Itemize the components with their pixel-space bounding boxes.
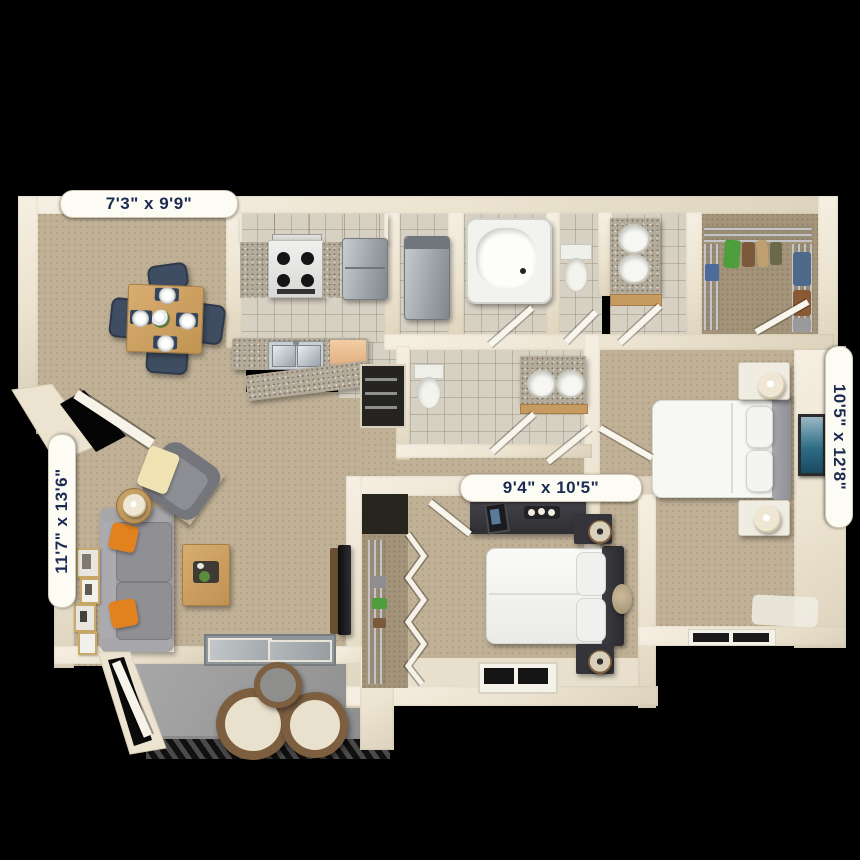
art-canvas [801, 417, 823, 473]
living-dimension-label: 11'7" x 13'6" [48, 434, 76, 608]
dinner-plate [179, 312, 197, 330]
bedroom2-dimension-text: 9'4" x 10'5" [503, 478, 599, 498]
linen-shelf [365, 378, 397, 381]
closet-clothes-green [372, 598, 387, 609]
wall-vanity-closet [686, 212, 702, 342]
hanging-clothes-brown [742, 242, 755, 267]
stove-burner [277, 274, 290, 287]
master-wall-art [798, 414, 826, 476]
sliding-door-pane [208, 638, 272, 662]
master-pillow [746, 406, 773, 448]
table-lamp [123, 494, 146, 517]
bedroom2-pillow [576, 598, 606, 642]
candle [548, 509, 555, 516]
art-content [82, 554, 91, 569]
wall-masterbath-bottom [396, 444, 592, 458]
kitchen-sink [268, 341, 324, 370]
bedroom2-window-pane [484, 668, 514, 684]
stove-control-panel [277, 289, 315, 294]
nightstand-lamp [754, 506, 781, 533]
dinner-plate [159, 287, 177, 305]
closet-clothes-gray [372, 576, 386, 588]
dining-table [126, 284, 204, 355]
washer-top-panel [405, 237, 449, 249]
wall-row1-bottom [384, 334, 834, 350]
bedroom2-pillow [576, 552, 606, 596]
wall-bedroom2-right [638, 494, 656, 708]
stove [268, 240, 324, 298]
throw-pillow-orange [108, 598, 139, 629]
coffee-table [182, 544, 230, 606]
bedroom2-lamp [588, 650, 612, 674]
bedroom2-closet-upper [362, 494, 408, 534]
linen-closet [360, 364, 406, 428]
wall-left-dining [18, 196, 38, 394]
dining-dimension-label: 7'3" x 9'9" [60, 190, 238, 218]
toilet-bowl [564, 258, 588, 292]
stove-burner [301, 274, 314, 287]
master-window [688, 629, 776, 646]
floor-blanket [751, 594, 818, 627]
sink-faucet [293, 340, 299, 346]
flower-centerpiece [152, 310, 171, 329]
wall-art-frame [76, 548, 100, 578]
master-pillow [746, 450, 773, 492]
hanging-clothes-olive [770, 242, 782, 265]
wall-art-frame [74, 604, 96, 632]
master-headboard [772, 394, 791, 500]
refrigerator [342, 238, 388, 300]
living-dimension-text: 11'7" x 13'6" [52, 468, 72, 573]
closet-bin-blue [705, 264, 719, 281]
vanity-sink [618, 224, 650, 254]
floor-plan-scene: 7'3" x 9'9" 9'4" x 10'5" 11'7" x 13'6" 1… [0, 0, 860, 860]
dinner-plate [132, 310, 150, 328]
closet-clothes-brown [373, 618, 386, 628]
sink-basin [297, 345, 321, 367]
bathtub-basin [476, 228, 536, 288]
tv [338, 545, 351, 635]
bedroom2-window [478, 662, 558, 694]
hanging-clothes-denim [793, 252, 811, 286]
candle [528, 509, 535, 516]
pouf [612, 584, 632, 614]
stove-burner [277, 252, 290, 265]
throw-pillow-orange [107, 521, 139, 553]
hanging-clothes-tan [756, 240, 769, 268]
art-content [85, 584, 92, 595]
candle [538, 508, 545, 515]
bedroom2-dimension-label: 9'4" x 10'5" [460, 474, 642, 502]
wall-art-frame [78, 632, 97, 655]
master-vanity-sink [527, 370, 556, 398]
linen-shelf [365, 392, 397, 395]
washer-dryer [404, 236, 450, 320]
bedroom2-lamp [588, 520, 612, 544]
tablet-screen [490, 509, 501, 525]
nightstand-lamp [758, 372, 785, 399]
duvet-fold [731, 403, 733, 493]
master-vanity-cabinet [520, 404, 588, 414]
master-toilet-bowl [417, 377, 441, 409]
sofa [100, 508, 174, 652]
master-vanity-sink [556, 370, 585, 398]
dining-dimension-text: 7'3" x 9'9" [106, 194, 192, 214]
master-toilet [414, 364, 444, 410]
sliding-door-pane [268, 640, 332, 662]
vanity-cabinet [610, 294, 662, 306]
hanging-clothes-green [723, 239, 741, 268]
master-dimension-label: 10'5" x 12'8" [825, 346, 853, 528]
kitchen-counter-left [240, 242, 268, 298]
potted-plant [199, 571, 210, 582]
tablet [484, 502, 510, 535]
stove-burner [301, 252, 314, 265]
linen-shelf [365, 406, 397, 409]
patio-table [254, 662, 302, 708]
art-content [80, 611, 87, 622]
wall-right-upper [818, 196, 838, 350]
hanging-clothes-rust [793, 290, 811, 316]
toilet [560, 244, 590, 292]
closet-shelf-left [704, 244, 720, 330]
bathtub [466, 218, 552, 304]
sink-basin [272, 345, 296, 367]
wall-art-frame [80, 578, 100, 604]
sliding-glass-door [204, 634, 336, 666]
master-window-pane [733, 633, 769, 642]
sofa-arm [100, 638, 174, 652]
hanging-clothes-gray [793, 318, 811, 332]
dinner-plate [157, 335, 175, 353]
bedroom2-closet-shelf [368, 540, 386, 684]
bathtub-drain [520, 268, 526, 274]
tray-dish [197, 563, 204, 569]
wall-laundry-bath [448, 212, 464, 342]
bedroom2-dresser [470, 498, 586, 534]
master-window-pane [693, 633, 729, 642]
bedroom2-window-pane [518, 668, 548, 684]
refrigerator-door-line [345, 267, 385, 269]
master-dimension-text: 10'5" x 12'8" [829, 384, 849, 490]
vanity-sink [618, 254, 650, 284]
kitchen-counter-right [322, 242, 340, 298]
